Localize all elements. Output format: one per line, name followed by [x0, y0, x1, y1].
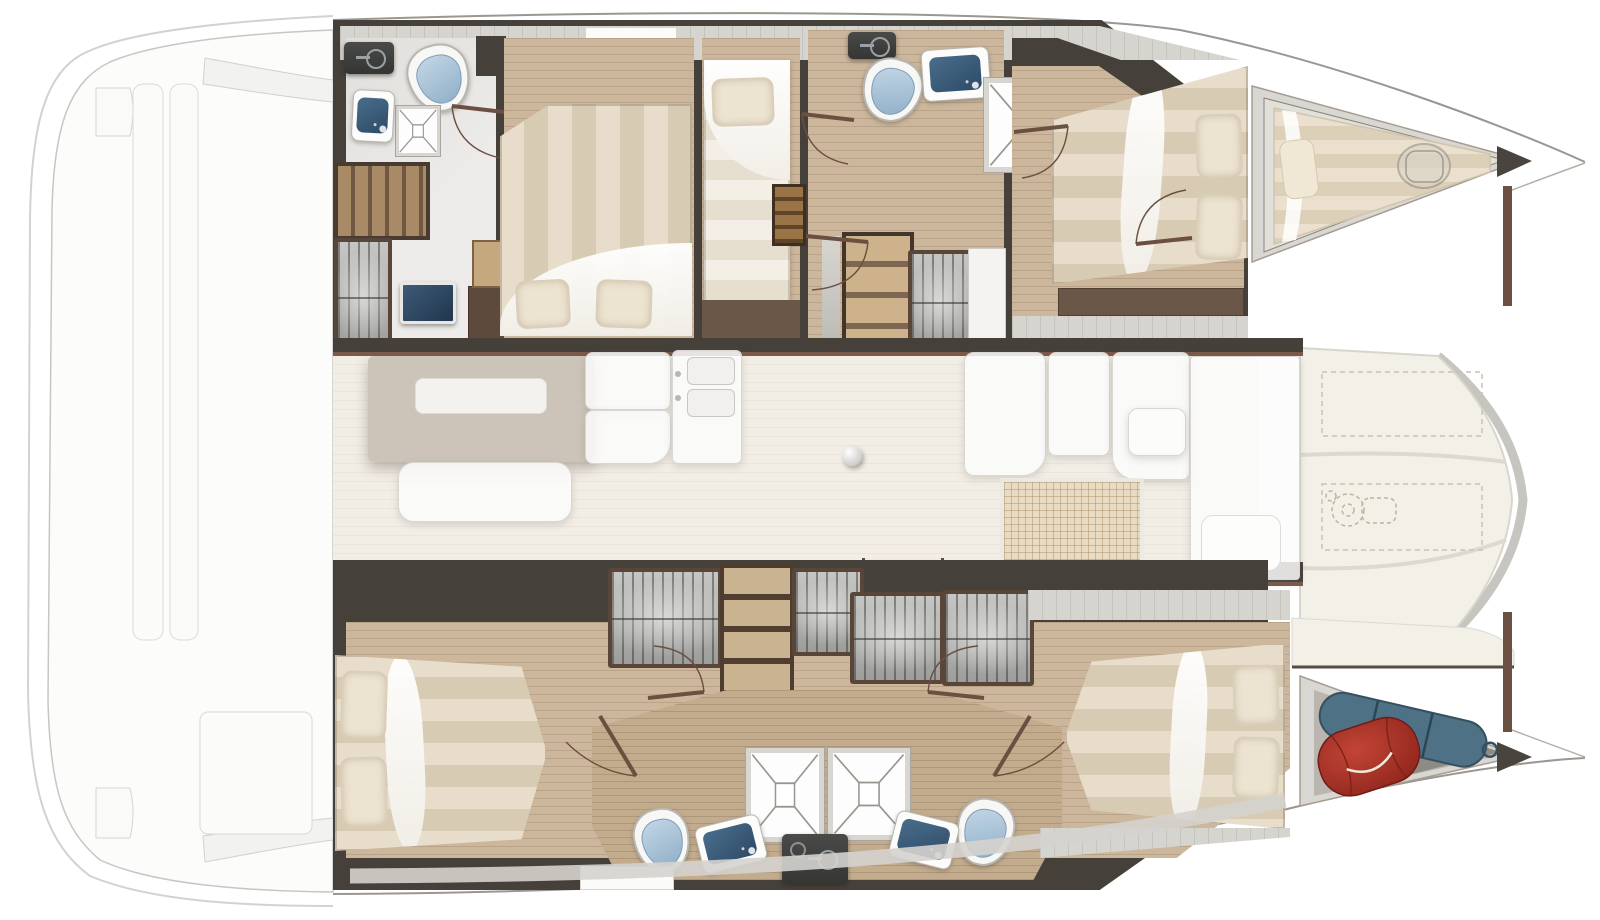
starboard-side-deck-band — [350, 800, 1285, 876]
detail-overlay-layer — [0, 0, 1600, 920]
door-swings — [452, 106, 1192, 776]
catamaran-floor-plan — [0, 0, 1600, 920]
